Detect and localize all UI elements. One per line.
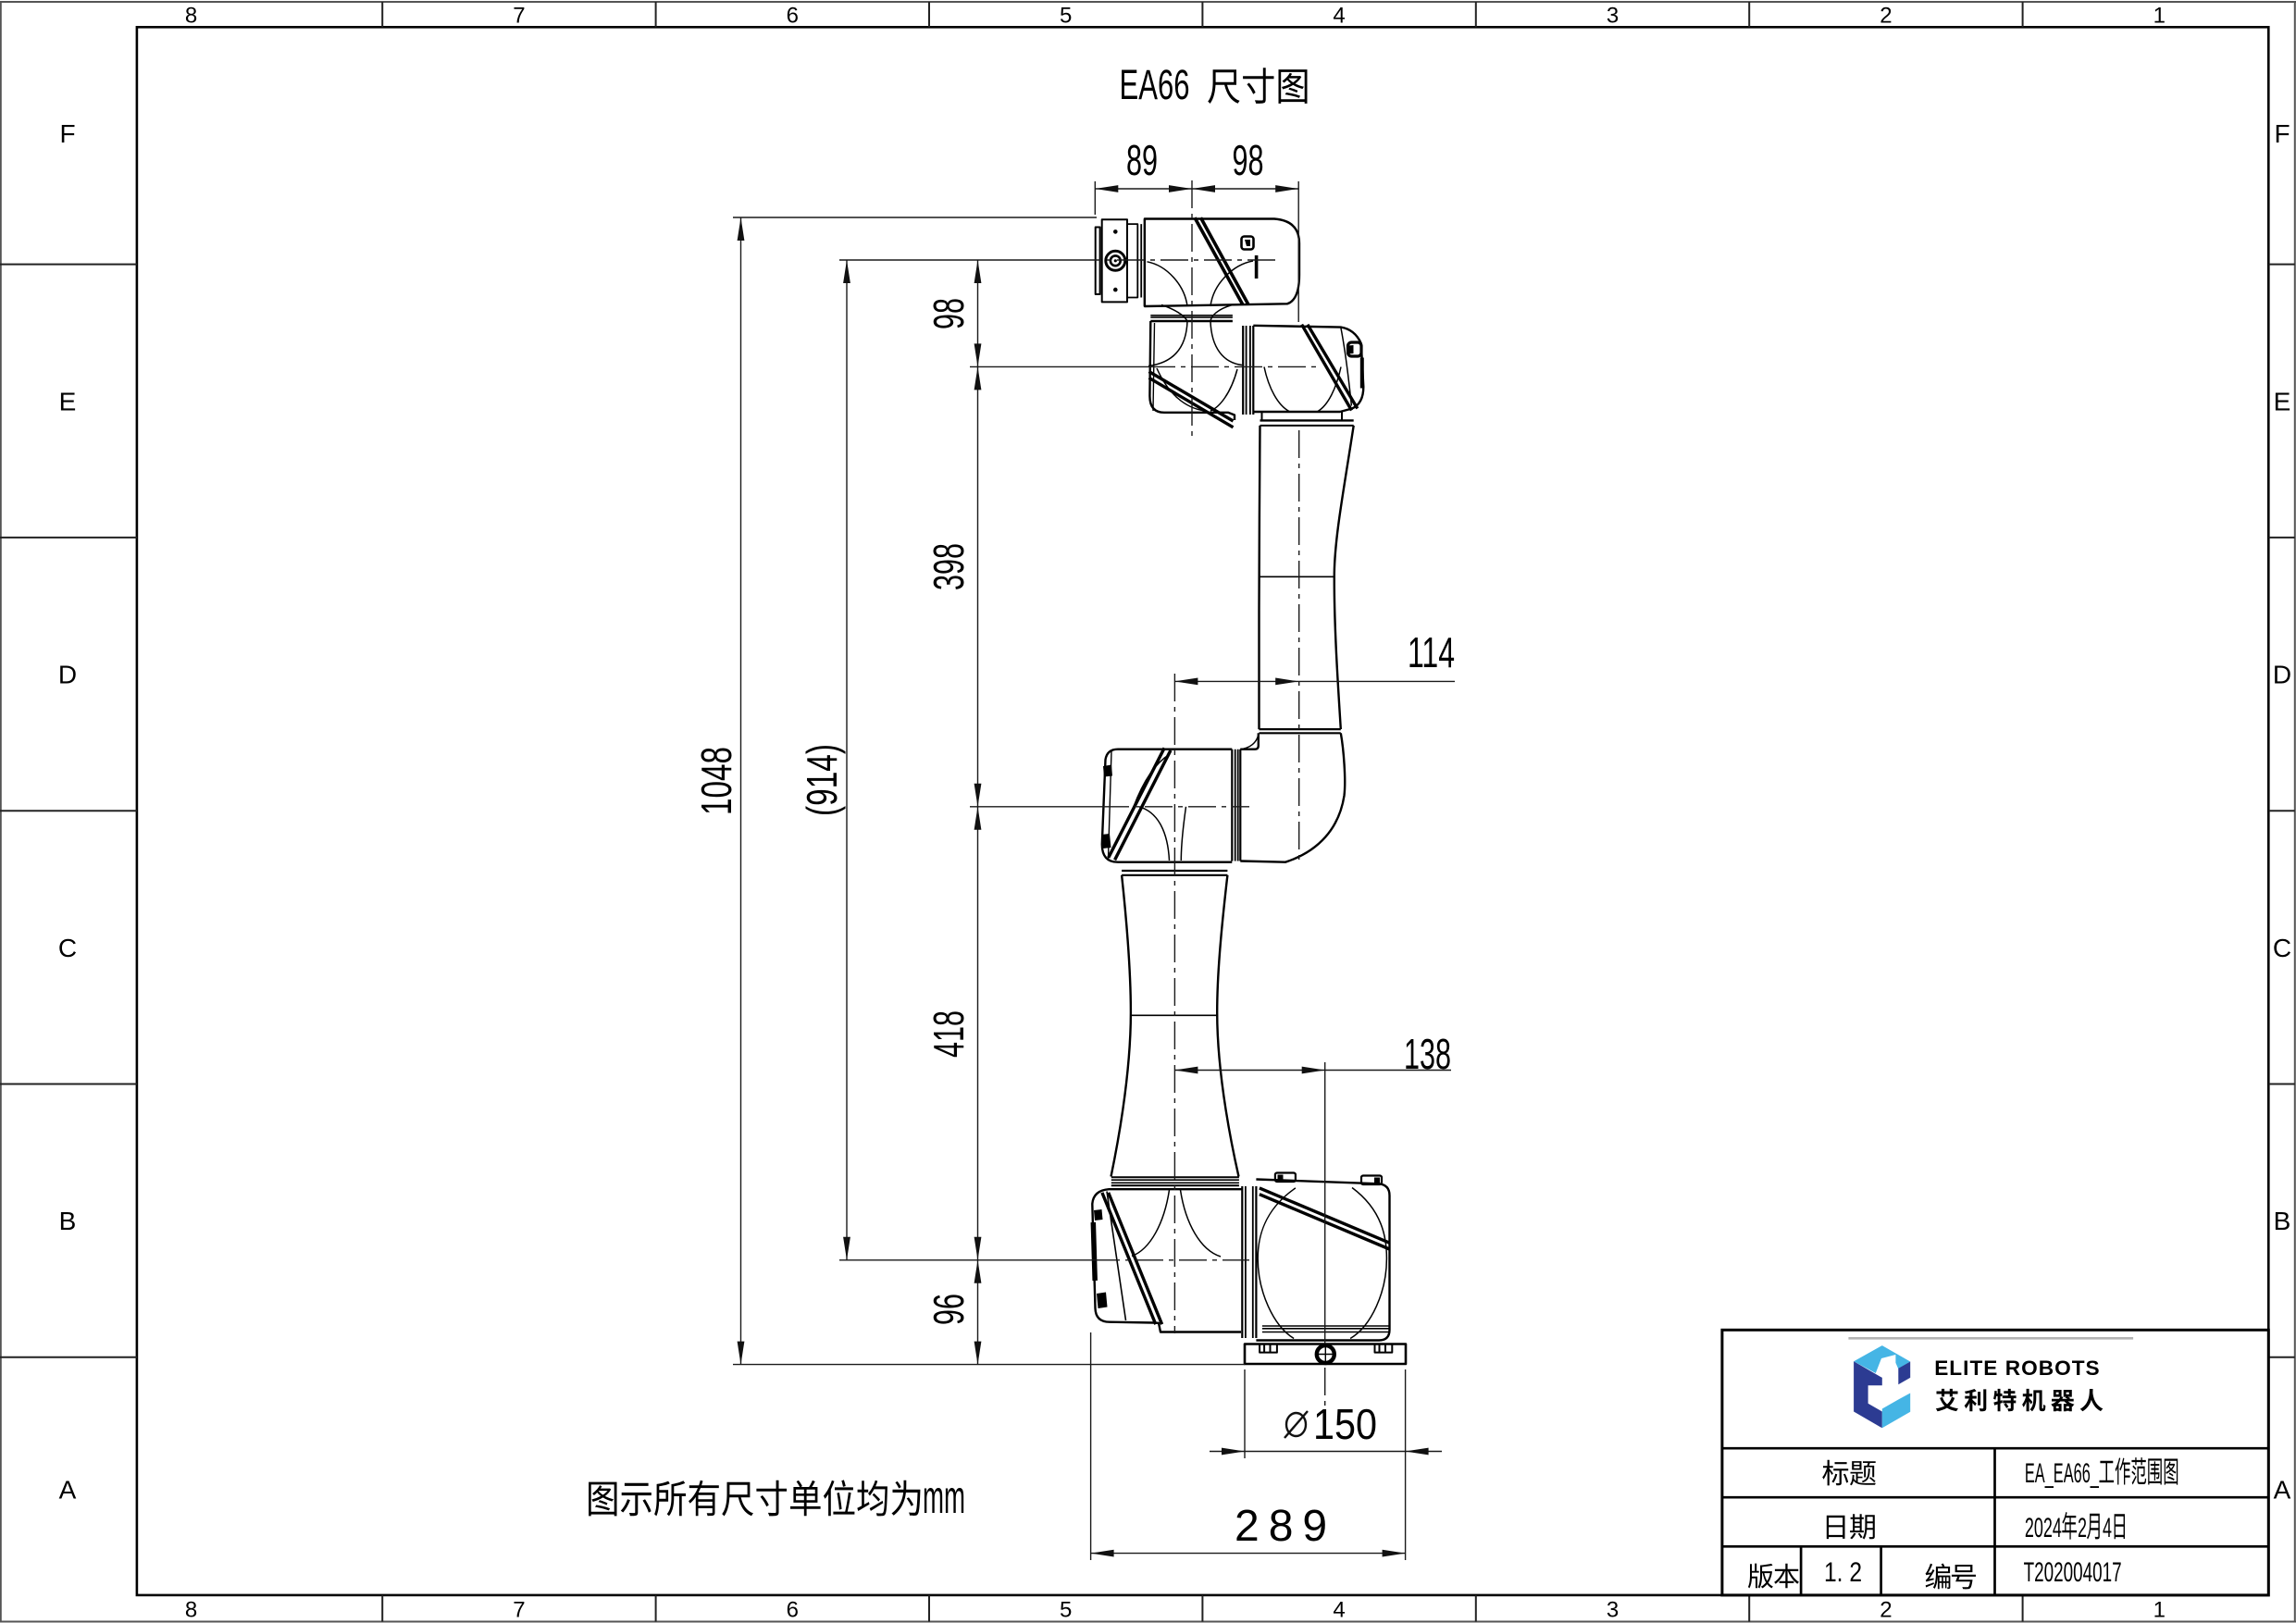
svg-text:114: 114: [1408, 628, 1455, 676]
svg-text:2: 2: [2078, 1513, 2087, 1543]
svg-text:138: 138: [1404, 1030, 1451, 1078]
svg-text:2: 2: [1880, 1598, 1892, 1623]
svg-text:3: 3: [1607, 4, 1619, 29]
svg-text:B: B: [2274, 1207, 2291, 1235]
svg-text:5: 5: [1060, 4, 1072, 29]
svg-text:398: 398: [925, 543, 973, 590]
svg-text:4: 4: [2103, 1513, 2112, 1543]
svg-text:B: B: [59, 1207, 77, 1235]
svg-text:EA_EA66_: EA_EA66_: [2025, 1458, 2100, 1489]
svg-text:6: 6: [787, 1598, 799, 1623]
svg-text:1048: 1048: [692, 747, 740, 815]
svg-text:2024: 2024: [2025, 1513, 2062, 1543]
svg-text:E: E: [2274, 387, 2291, 415]
svg-text:6: 6: [787, 4, 799, 29]
svg-text:E: E: [59, 387, 77, 415]
svg-text:ELITE ROBOTS: ELITE ROBOTS: [1934, 1357, 2101, 1380]
svg-text:D: D: [58, 661, 77, 689]
svg-text:C: C: [2273, 934, 2291, 962]
svg-text:5: 5: [1060, 1598, 1072, 1623]
svg-text:(914): (914): [798, 744, 846, 816]
svg-text:F: F: [2274, 119, 2290, 148]
svg-text:EA66: EA66: [1120, 61, 1190, 108]
svg-text:96: 96: [925, 1294, 973, 1325]
svg-text:7: 7: [513, 1598, 525, 1623]
svg-text:C: C: [58, 934, 77, 962]
svg-text:1. 2: 1. 2: [1824, 1557, 1862, 1588]
svg-text:150: 150: [1313, 1400, 1377, 1448]
svg-text:4: 4: [1333, 4, 1345, 29]
svg-text:T202004017: T202004017: [2024, 1557, 2122, 1588]
svg-text:8: 8: [185, 1598, 197, 1623]
svg-text:A: A: [2274, 1476, 2291, 1505]
svg-text:7: 7: [513, 4, 525, 29]
svg-text:2: 2: [1880, 4, 1892, 29]
svg-text:A: A: [59, 1476, 77, 1505]
svg-text:98: 98: [1233, 136, 1264, 184]
svg-text:4: 4: [1333, 1598, 1345, 1623]
svg-text:8: 8: [185, 4, 197, 29]
svg-text:98: 98: [925, 298, 973, 329]
svg-text:89: 89: [1126, 136, 1158, 184]
svg-text:D: D: [2273, 661, 2291, 689]
svg-text:3: 3: [1607, 1598, 1619, 1623]
svg-text:F: F: [59, 119, 75, 148]
svg-text:289: 289: [1235, 1502, 1336, 1551]
svg-text:mm: mm: [923, 1471, 965, 1523]
svg-text:1: 1: [2153, 1598, 2166, 1623]
svg-text:418: 418: [925, 1010, 973, 1058]
svg-text:1: 1: [2153, 4, 2166, 29]
